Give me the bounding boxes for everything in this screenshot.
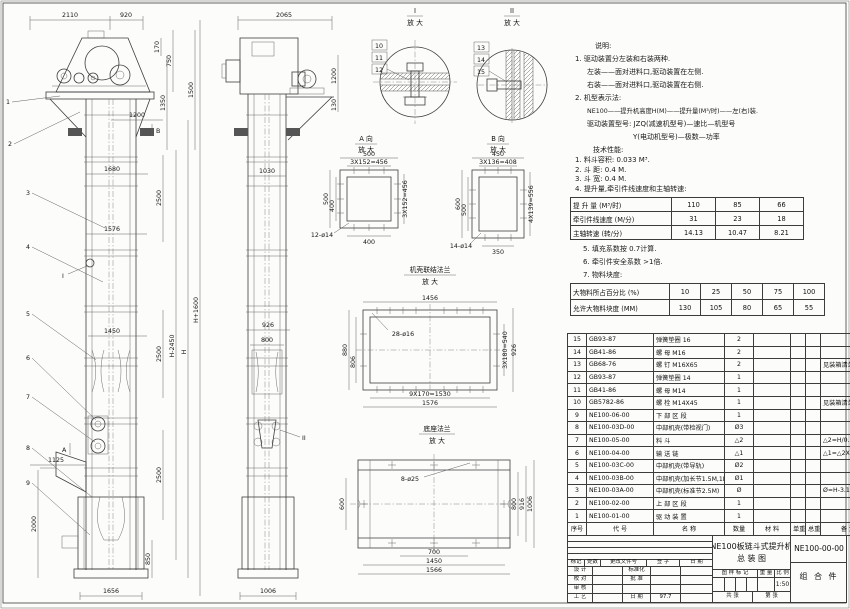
dim-a-400-bottom: 400	[363, 239, 375, 246]
dim-b-500: 500	[461, 204, 468, 216]
leader-2: 2	[8, 141, 12, 148]
note-line: 右装——面对进料口,驱动装置在右侧.	[575, 79, 843, 92]
dim-a-pitch-top: 3X152=456	[350, 159, 388, 166]
view-b-dimensions: 450 3X136=408 600 500 4X139=556 350 14-ø…	[450, 151, 535, 256]
capacity-row-label: 主轴转速 (转/分)	[571, 226, 672, 240]
dim-base-1450: 1450	[426, 558, 442, 565]
bom-name: 输 送 链	[654, 447, 725, 460]
stamp-header-weight: 重 量	[757, 570, 774, 578]
view-a-dimensions: 500 3X152=456 500 400 3X152=456 400 12-ø…	[311, 151, 409, 246]
dim-side-1200: 1200	[331, 68, 338, 84]
table-row: 主轴转速 (转/分) 14.13 10.47 8.21	[571, 226, 804, 240]
block-value: 25	[701, 284, 732, 300]
bom-qty: 2	[725, 346, 754, 359]
sign-standard: 标准化	[622, 567, 650, 576]
bom-unit-weight	[791, 359, 806, 372]
dim-base-1006: 1006	[527, 496, 534, 512]
notes-block: 说明: 1. 驱动装置分左装和右装两种. 左装——面对进料口,驱动装置在左侧. …	[575, 40, 843, 144]
bom-header-material: 材 料	[754, 522, 791, 535]
bom-no: 5	[568, 459, 587, 472]
view-b-title: B 向	[491, 134, 505, 143]
view-a: A 向 放 大 500 3X152=456 500 400 3X152=456 …	[311, 134, 409, 246]
bom-name: 螺 母 M14	[654, 384, 725, 397]
dim-926: 926	[262, 322, 274, 329]
capacity-row-label: 牵引件线速度 (M/分)	[571, 212, 672, 226]
bom-row: 3NE100-03A-00中部机壳(标准节2.5M)ØØ=H-3.15/2.5	[568, 485, 850, 498]
tech-item: 3. 斗 宽: 0.4 M.	[575, 175, 843, 185]
bom-total-weight	[806, 396, 821, 409]
dim-850: 850	[145, 553, 152, 565]
section-arrow-a: A	[62, 447, 67, 454]
bom-remark: △2=H/0.2+5.75	[821, 434, 850, 447]
dim-a-pitch-right: 3X152=456	[402, 180, 409, 218]
leader-6: 6	[26, 355, 30, 362]
detail-ii-title: II	[510, 7, 514, 15]
bom-name: 螺 钉 M16X65	[654, 359, 725, 372]
bom-material	[754, 396, 791, 409]
dim-806: 806	[350, 356, 357, 368]
bom-row: 7NE100-05-00料 斗△2△2=H/0.2+5.75	[568, 434, 850, 447]
dim-flange-rows: 3X180=540	[502, 331, 509, 369]
note-line: Y(电动机型号)—极数—功率	[575, 131, 843, 144]
bom-unit-weight	[791, 346, 806, 359]
notes-heading: 说明:	[575, 40, 843, 53]
bom-material	[754, 422, 791, 435]
bom-header-no: 序号	[568, 522, 587, 535]
bom-name: 弹簧垫圈 14	[654, 371, 725, 384]
section-arrow-b: B	[156, 128, 160, 135]
bom-total-weight	[806, 472, 821, 485]
tech-block-pre: 技术性能: 1. 料斗容积: 0.033 M³. 2. 斗 距: 0.4 M. …	[575, 146, 843, 195]
bom-row: 6NE100-04-00输 送 链△1△1=△2X4	[568, 447, 850, 460]
block-value: 55	[794, 300, 825, 316]
bom-qty: 1	[725, 396, 754, 409]
dim-b-350: 350	[492, 249, 504, 256]
dim-1456: 1456	[422, 295, 438, 302]
detail-i-title: I	[414, 7, 416, 15]
dim-a-500-top: 500	[363, 151, 375, 158]
block-value: 130	[670, 300, 701, 316]
bom-unit-weight	[791, 371, 806, 384]
bom-remark	[821, 334, 850, 347]
dim-flange-926: 926	[511, 344, 518, 356]
bom-name: 中部机壳(加长节1.5M,1M)	[654, 472, 725, 485]
title-block: 标记 处数 更改文件号 签 字 日 期 设 计 标准化 校 对 批 准 审 核 …	[567, 535, 847, 603]
bom-remark	[821, 409, 850, 422]
dim-b-pitch-top: 3X136=408	[479, 159, 517, 166]
leader-8: 8	[26, 445, 30, 452]
flange-subtitle: 放 大	[422, 277, 438, 286]
capacity-value: 14.13	[672, 226, 716, 240]
bom-material	[754, 359, 791, 372]
bom-total-weight	[806, 497, 821, 510]
tech-item: 2. 斗 距: 0.4 M.	[575, 166, 843, 176]
bom-code: NE100-03C-00	[587, 459, 654, 472]
capacity-value: 66	[760, 198, 804, 212]
rev-header-mark: 标记	[568, 559, 584, 567]
bom-material	[754, 409, 791, 422]
bom-name: 中部机壳(带导轨)	[654, 459, 725, 472]
bom-qty: 1	[725, 497, 754, 510]
bom-total-weight	[806, 459, 821, 472]
stamp-header-mark: 图 样 标 记	[713, 570, 757, 578]
note-line: 2. 机型表示法:	[575, 92, 843, 105]
drawing-sheet: 2110 920 170 750 1350 1500 1200 B 1680 2…	[0, 0, 850, 609]
bom-material	[754, 485, 791, 498]
capacity-value: 110	[672, 198, 716, 212]
bom-no: 15	[568, 334, 587, 347]
bom-name: 驱 动 装 置	[654, 510, 725, 523]
bom-total-weight	[806, 422, 821, 435]
rev-header-sign: 签 字	[646, 559, 679, 567]
block-value: 75	[763, 284, 794, 300]
rev-header-date: 日 期	[679, 559, 713, 567]
capacity-value: 31	[672, 212, 716, 226]
rev-header-docno: 更改文件号	[600, 559, 646, 567]
sign-process: 工 艺	[568, 594, 592, 602]
bom-total-weight	[806, 359, 821, 372]
bom-row: 8NE100-03D-00中部机壳(带检视门)Ø3	[568, 422, 850, 435]
bom-total-weight	[806, 409, 821, 422]
block-size-table: 大物料所占百分比 (%) 10 25 50 75 100 允许大物料块度 (MM…	[570, 283, 825, 316]
bom-qty: Ø1	[725, 472, 754, 485]
bom-row: 10GB5782-86螺 栓 M14X451见装箱清单	[568, 396, 850, 409]
dim-2065: 2065	[276, 12, 292, 19]
bom-header-qty: 数量	[725, 522, 754, 535]
bom-qty: 1	[725, 384, 754, 397]
bom-name: 弹簧垫圈 16	[654, 334, 725, 347]
bom-row: 1NE100-01-00驱 动 装 置1	[568, 510, 850, 523]
bom-qty: 1	[725, 371, 754, 384]
bom-table: 15GB93-87弹簧垫圈 162 14GB41-86螺 母 M162 13GB…	[567, 333, 850, 536]
bom-unit-weight	[791, 447, 806, 460]
bom-header-name: 名 称	[654, 522, 725, 535]
dim-170: 170	[154, 41, 161, 53]
view-a-title: A 向	[359, 134, 373, 143]
bom-material	[754, 510, 791, 523]
bom-code: GB41-86	[587, 346, 654, 359]
dim-b-rows: 4X139=556	[528, 185, 535, 223]
bom-material	[754, 447, 791, 460]
bom-name: 料 斗	[654, 434, 725, 447]
dim-base-holes: 8-ø25	[401, 476, 419, 483]
detail-ii: II 放 大 13 14 15	[474, 7, 548, 124]
bom-remark	[821, 384, 850, 397]
bom-code: NE100-05-00	[587, 434, 654, 447]
dim-h: H	[181, 349, 188, 354]
capacity-value: 85	[716, 198, 760, 212]
capacity-row-label: 提 升 量 (M³/时)	[571, 198, 672, 212]
dim-2500-c: 2500	[156, 467, 163, 483]
base-subtitle: 放 大	[429, 436, 445, 445]
bom-row: 2NE100-02-00上 部 区 段1	[568, 497, 850, 510]
capacity-value: 23	[716, 212, 760, 226]
flange-detail: 机壳联结法兰 放 大 1456 28-ø16 880 806 3X180=540…	[342, 265, 518, 407]
dim-2000: 2000	[31, 516, 38, 532]
tech-item: 6. 牵引件安全系数 >1倍.	[583, 256, 843, 269]
bom-header-total-weight: 总重	[806, 522, 821, 535]
sheet-number: 第 张	[752, 592, 791, 602]
dim-1450: 1450	[104, 328, 120, 335]
bom-unit-weight	[791, 434, 806, 447]
bom-qty: 1	[725, 409, 754, 422]
bom-qty: 2	[725, 359, 754, 372]
drawing-title-line2: 总 装 图	[737, 553, 766, 565]
block-value: 10	[670, 284, 701, 300]
drawing-number: NE100-00-00	[791, 536, 847, 563]
bom-remark: 见装箱清单	[821, 396, 850, 409]
dim-base-800: 800	[511, 498, 518, 510]
block-value: 80	[732, 300, 763, 316]
bom-no: 7	[568, 434, 587, 447]
capacity-value: 18	[760, 212, 804, 226]
bom-row: 13GB68-76螺 钉 M16X652见装箱清单	[568, 359, 850, 372]
bom-remark	[821, 497, 850, 510]
sign-audit: 审 核	[568, 585, 592, 594]
bom-remark: △1=△2X4	[821, 447, 850, 460]
bom-code: GB93-87	[587, 334, 654, 347]
bom-remark	[821, 510, 850, 523]
block-value: 65	[763, 300, 794, 316]
bom-header-remark: 备 注	[821, 522, 850, 535]
bom-total-weight	[806, 485, 821, 498]
dim-1006: 1006	[260, 588, 276, 595]
drawing-title-line1: NE100板链斗式提升机	[713, 541, 791, 553]
table-row: 提 升 量 (M³/时) 110 85 66	[571, 198, 804, 212]
bom-code: NE100-03A-00	[587, 485, 654, 498]
bom-code: NE100-03B-00	[587, 472, 654, 485]
view-b: B 向 放 大 450 3X136=408 600 500 4X139=556 …	[450, 134, 535, 256]
dim-base-916: 916	[519, 498, 526, 510]
sign-design: 设 计	[568, 567, 592, 576]
block-row-label: 大物料所占百分比 (%)	[571, 284, 670, 300]
base-title: 底座法兰	[423, 424, 450, 433]
stamp-header-scale: 比 例	[774, 570, 791, 578]
dim-flange-cols: 9X170=1530	[409, 391, 451, 398]
bom-header-unit-weight: 单重	[791, 522, 806, 535]
bom-no: 8	[568, 422, 587, 435]
bom-material	[754, 384, 791, 397]
bom-name: 中部机壳(带检视门)	[654, 422, 725, 435]
capacity-value: 10.47	[716, 226, 760, 240]
bom-total-weight	[806, 434, 821, 447]
block-value: 50	[732, 284, 763, 300]
flange-title: 机壳联结法兰	[410, 265, 451, 274]
dim-2500-b: 2500	[156, 346, 163, 362]
part-type: 组 合 件	[791, 563, 847, 591]
bom-unit-weight	[791, 472, 806, 485]
note-line: 1. 驱动装置分左装和右装两种.	[575, 53, 843, 66]
bom-qty: △2	[725, 434, 754, 447]
detail-ii-leaders: 13 14 15	[474, 42, 507, 82]
bom-name: 上 部 区 段	[654, 497, 725, 510]
bom-code: NE100-04-00	[587, 447, 654, 460]
detail-mark-i: I	[62, 273, 64, 280]
dim-base-700: 700	[428, 549, 440, 556]
bom-row: 5NE100-03C-00中部机壳(带导轨)Ø2	[568, 459, 850, 472]
dim-1500: 1500	[188, 82, 195, 98]
bom-remark	[821, 346, 850, 359]
dim-130: 130	[331, 99, 338, 111]
bom-no: 6	[568, 447, 587, 460]
table-row: 大物料所占百分比 (%) 10 25 50 75 100	[571, 284, 825, 300]
bom-code: GB93-87	[587, 371, 654, 384]
dim-h-2450: H-2450	[169, 334, 176, 357]
leader-7: 7	[26, 394, 30, 401]
bom-unit-weight	[791, 459, 806, 472]
bom-material	[754, 434, 791, 447]
bom-remark: 见装箱清单	[821, 359, 850, 372]
bom-no: 12	[568, 371, 587, 384]
bom-no: 1	[568, 510, 587, 523]
bom-qty: Ø3	[725, 422, 754, 435]
base-dimensions: 8-ø25 600 800 916 1006 700 1450 1566	[339, 460, 534, 574]
bom-no: 9	[568, 409, 587, 422]
detail-ii-subtitle: 放 大	[504, 18, 520, 27]
dim-b-holes: 14-ø14	[450, 243, 472, 250]
bom-remark	[821, 371, 850, 384]
bom-row: 12GB93-87弹簧垫圈 141	[568, 371, 850, 384]
bom-material	[754, 371, 791, 384]
bom-qty: 2	[725, 334, 754, 347]
bom-name: 螺 栓 M14X45	[654, 396, 725, 409]
dim-base-600: 600	[339, 498, 346, 510]
base-detail: 底座法兰 放 大 8-ø25 600 800	[339, 424, 534, 574]
bom-code: GB68-76	[587, 359, 654, 372]
bom-total-weight	[806, 510, 821, 523]
bom-code: GB41-86	[587, 384, 654, 397]
sheet-total: 共 张	[713, 592, 752, 602]
dim-800: 800	[261, 337, 273, 344]
bom-no: 10	[568, 396, 587, 409]
bom-unit-weight	[791, 422, 806, 435]
table-row: 允许大物料块度 (MM) 130 105 80 65 55	[571, 300, 825, 316]
dim-flange-holes: 28-ø16	[392, 331, 414, 338]
bom-unit-weight	[791, 384, 806, 397]
bom-total-weight	[806, 334, 821, 347]
block-value: 100	[794, 284, 825, 300]
bom-code: NE100-01-00	[587, 510, 654, 523]
bom-total-weight	[806, 447, 821, 460]
bom-header-row: 序号代 号名 称数量材 料单重总重备 注	[568, 522, 850, 535]
bom-row: 4NE100-03B-00中部机壳(加长节1.5M,1M)Ø1	[568, 472, 850, 485]
dim-1680: 1680	[104, 166, 120, 173]
bom-code: NE100-06-00	[587, 409, 654, 422]
capacity-table: 提 升 量 (M³/时) 110 85 66 牵引件线速度 (M/分) 31 2…	[570, 197, 804, 240]
leader-9: 9	[26, 480, 30, 487]
bom-name: 中部机壳(标准节2.5M)	[654, 485, 725, 498]
bom-material	[754, 472, 791, 485]
bom-total-weight	[806, 346, 821, 359]
leader-12: 12	[375, 67, 383, 74]
bom-header-code: 代 号	[587, 522, 654, 535]
bom-code: GB5782-86	[587, 396, 654, 409]
tech-item: 4. 提升量,牵引件线速度和主轴转速:	[575, 185, 843, 195]
sign-approve: 批 准	[622, 576, 650, 585]
bom-qty: 1	[725, 510, 754, 523]
bom-code: NE100-03D-00	[587, 422, 654, 435]
bom-no: 2	[568, 497, 587, 510]
note-line: NE100——提升机高度H(M)——提升量(M³/时)——左(右)装.	[575, 105, 843, 118]
dim-h-plus-1600: H+1600	[193, 297, 200, 323]
bom-row: 11GB41-86螺 母 M141	[568, 384, 850, 397]
bom-material	[754, 334, 791, 347]
tech-item: 7. 物料块度:	[583, 269, 843, 282]
dim-920: 920	[120, 12, 132, 19]
bom-remark	[821, 459, 850, 472]
bom-unit-weight	[791, 497, 806, 510]
scale-value: 1:50	[774, 578, 791, 592]
detail-i: I 放 大 10 11 12	[372, 7, 457, 124]
bom-unit-weight	[791, 396, 806, 409]
capacity-value: 8.21	[760, 226, 804, 240]
detail-mark-ii: II	[302, 435, 306, 442]
dim-1200: 1200	[129, 112, 145, 119]
bom-row: 9NE100-06-00下 部 区 段1	[568, 409, 850, 422]
sign-check: 校 对	[568, 576, 592, 585]
leader-15: 15	[477, 69, 485, 76]
dim-a-400-left: 400	[329, 200, 336, 212]
bom-remark: Ø=H-3.15/2.5	[821, 485, 850, 498]
block-value: 105	[701, 300, 732, 316]
drawing-title: NE100板链斗式提升机 总 装 图	[713, 536, 791, 570]
bom-no: 11	[568, 384, 587, 397]
leader-10: 10	[375, 43, 383, 50]
dim-1350: 1350	[160, 95, 167, 111]
dim-a-holes: 12-ø14	[311, 232, 333, 239]
leader-1: 1	[6, 99, 10, 106]
leader-14: 14	[477, 57, 485, 64]
block-row-label: 允许大物料块度 (MM)	[571, 300, 670, 316]
dim-880: 880	[342, 344, 349, 356]
dim-b-450: 450	[492, 151, 504, 158]
side-view: 2065 1200 130 1030 926 800 1006 II	[222, 12, 338, 600]
leader-11: 11	[375, 55, 383, 62]
tech-block-post: 5. 填充系数按 0.7计算. 6. 牵引件安全系数 >1倍. 7. 物料块度:	[583, 243, 843, 282]
bom-unit-weight	[791, 510, 806, 523]
tech-item: 5. 填充系数按 0.7计算.	[583, 243, 843, 256]
leader-4: 4	[26, 244, 30, 251]
bom-no: 13	[568, 359, 587, 372]
sign-date-value: 97.7	[650, 594, 680, 602]
bom-no: 14	[568, 346, 587, 359]
bom-total-weight	[806, 371, 821, 384]
bom-qty: △1	[725, 447, 754, 460]
dim-1030: 1030	[259, 168, 275, 175]
leader-13: 13	[477, 45, 485, 52]
rev-header-count: 处数	[584, 559, 600, 567]
bom-qty: Ø2	[725, 459, 754, 472]
bom-qty: Ø	[725, 485, 754, 498]
leader-3: 3	[26, 190, 30, 197]
note-line: 驱动装置型号: JZQ(减速机型号)—速比—机型号	[575, 118, 843, 131]
bom-no: 4	[568, 472, 587, 485]
note-line: 左装——面对进料口,驱动装置在左侧.	[575, 66, 843, 79]
tech-heading: 技术性能:	[575, 146, 843, 156]
table-row: 牵引件线速度 (M/分) 31 23 18	[571, 212, 804, 226]
dim-base-1566: 1566	[426, 567, 442, 574]
dim-1576: 1576	[104, 226, 120, 233]
dim-1576-flange: 1576	[422, 400, 438, 407]
bom-material	[754, 346, 791, 359]
bom-code: NE100-02-00	[587, 497, 654, 510]
bom-material	[754, 497, 791, 510]
detail-i-subtitle: 放 大	[407, 18, 423, 27]
dim-2110: 2110	[62, 12, 78, 19]
dim-2500-a: 2500	[156, 190, 163, 206]
bom-unit-weight	[791, 485, 806, 498]
leader-5: 5	[26, 311, 30, 318]
